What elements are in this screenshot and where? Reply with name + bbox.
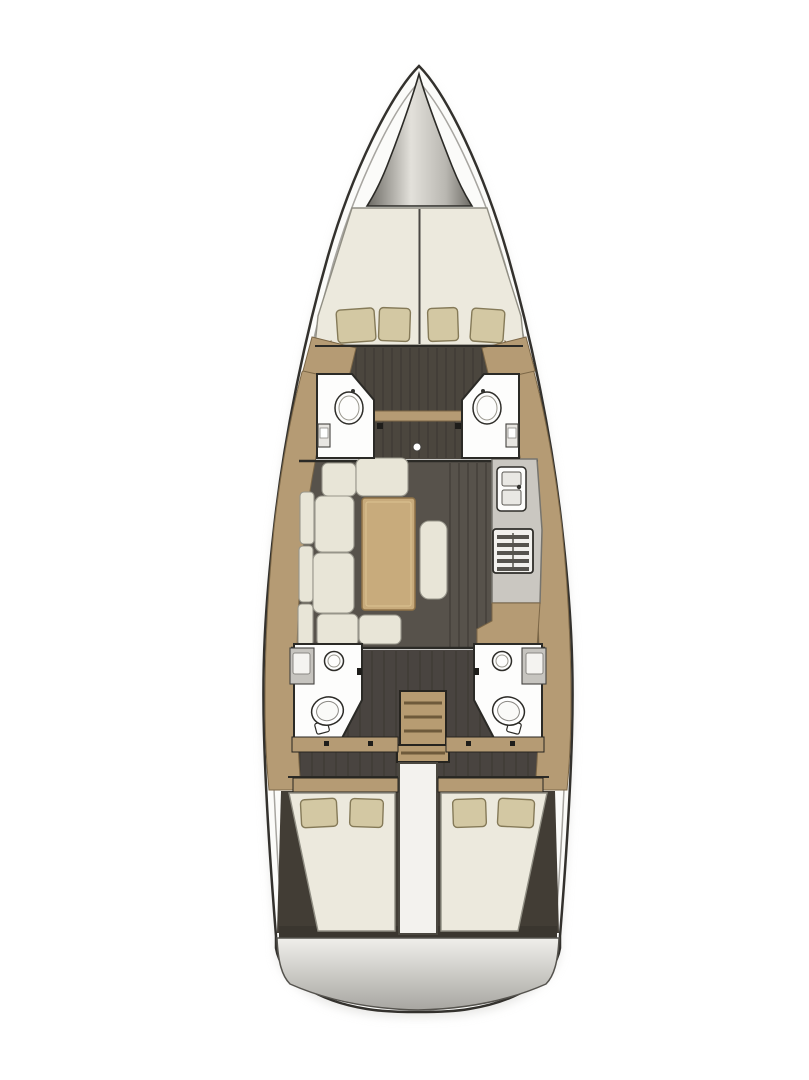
engine-box-divider [399, 763, 437, 934]
forward-cabin-door-sill [374, 411, 462, 421]
starboard-threshold-step [446, 737, 544, 752]
companionway-stairs [397, 691, 449, 762]
yacht-floor-plan-page [0, 0, 809, 1080]
port-headboard-shelf [293, 778, 398, 792]
floor-plan-svg [0, 0, 809, 1080]
salon-bench [420, 521, 447, 599]
door-stop-right [455, 423, 461, 429]
door-stop-left [377, 423, 383, 429]
salon-table [362, 498, 415, 610]
galley-sink-icon [497, 467, 526, 511]
galley-stove-icon [493, 529, 533, 573]
port-threshold-step [292, 737, 398, 752]
forward-door-knob [413, 443, 421, 451]
starboard-headboard-shelf [438, 778, 543, 792]
